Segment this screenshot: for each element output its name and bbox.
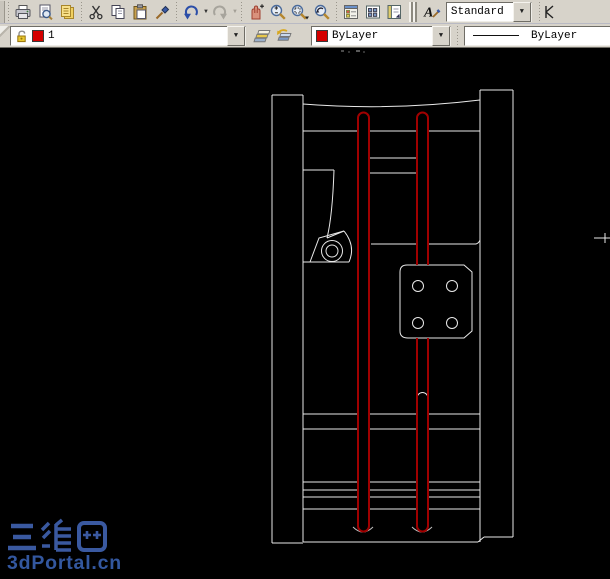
toolbar-separator xyxy=(454,26,461,46)
toolbar-separator xyxy=(173,2,180,22)
watermark-subtitle: 3dPortal.cn xyxy=(7,552,122,574)
paste-button[interactable] xyxy=(129,1,151,22)
paste-icon xyxy=(131,3,149,21)
zoom-realtime-icon xyxy=(269,3,287,21)
clipped-geometry-right xyxy=(594,233,610,243)
linetype-sample-icon xyxy=(473,35,519,36)
pan-button[interactable] xyxy=(245,1,267,22)
cad-red-slots xyxy=(358,113,428,532)
zoom-window-icon xyxy=(290,3,310,21)
redo-button[interactable] xyxy=(209,1,231,22)
linetype-dropdown[interactable]: ByLayer xyxy=(464,26,610,46)
plot-icon xyxy=(14,3,32,21)
caret-icon: ▼ xyxy=(520,8,524,16)
text-style-dropdown-button[interactable]: ▼ xyxy=(513,2,531,22)
tool-palettes-icon xyxy=(385,3,404,21)
layer-previous-icon xyxy=(274,27,294,45)
pan-icon xyxy=(247,3,265,21)
cut-button[interactable] xyxy=(85,1,107,22)
undo-button[interactable] xyxy=(180,1,202,22)
text-style-button[interactable]: A xyxy=(420,1,442,22)
properties-icon xyxy=(342,3,360,21)
clipped-icon-fragment xyxy=(0,26,10,46)
unlock-icon xyxy=(15,29,28,43)
color-value: ByLayer xyxy=(332,30,378,42)
autocad-window: ▼ ▼ xyxy=(0,0,610,579)
color-field: ByLayer xyxy=(312,30,432,42)
text-style-dropdown[interactable]: Standard ▼ xyxy=(446,2,532,22)
zoom-previous-icon xyxy=(313,3,331,21)
watermark: 3dPortal.cn xyxy=(7,520,122,574)
zoom-window-button[interactable] xyxy=(289,1,311,22)
toolbar-separator xyxy=(333,2,340,22)
copy-button[interactable] xyxy=(107,1,129,22)
partial-icon xyxy=(545,5,555,19)
screen-artifacts xyxy=(341,50,365,53)
watermark-title-glyphs xyxy=(8,520,105,550)
publish-icon xyxy=(58,3,77,21)
red-slot-left xyxy=(358,113,369,532)
undo-icon xyxy=(182,3,200,21)
drawing-canvas[interactable]: 3dPortal.cn 三维网 xyxy=(0,48,610,579)
layers-toolbar: 1 ▼ xyxy=(0,24,610,48)
plot-preview-icon xyxy=(36,3,54,21)
red-slot-right xyxy=(417,113,428,532)
toolbar-separator xyxy=(5,2,12,22)
cad-drawing: 3dPortal.cn xyxy=(0,48,610,579)
plot-button[interactable] xyxy=(12,1,34,22)
caret-icon: ▼ xyxy=(439,32,443,40)
toolbar-grip[interactable] xyxy=(409,2,417,22)
color-swatch xyxy=(316,30,328,42)
text-style-icon: A xyxy=(421,3,441,21)
properties-button[interactable] xyxy=(340,1,362,22)
toolbar-separator xyxy=(238,2,245,22)
standard-toolbar: ▼ ▼ xyxy=(0,0,610,24)
caret-icon: ▼ xyxy=(234,32,238,40)
zoom-realtime-button[interactable] xyxy=(267,1,289,22)
svg-text:A: A xyxy=(423,5,433,20)
copy-icon xyxy=(109,3,127,21)
tool-palettes-button[interactable] xyxy=(384,1,406,22)
layer-properties-icon xyxy=(252,27,272,45)
match-properties-icon xyxy=(153,3,171,21)
linetype-field: ByLayer xyxy=(465,30,610,42)
layer-color-swatch xyxy=(32,30,44,42)
plot-preview-button[interactable] xyxy=(34,1,56,22)
design-center-button[interactable] xyxy=(362,1,384,22)
layer-field: 1 xyxy=(11,29,227,43)
color-dropdown-button[interactable]: ▼ xyxy=(432,26,450,46)
layer-previous-button[interactable] xyxy=(273,25,295,46)
cut-icon xyxy=(87,3,105,21)
color-dropdown[interactable]: ByLayer ▼ xyxy=(311,26,451,46)
layer-properties-button[interactable] xyxy=(251,25,273,46)
design-center-icon xyxy=(364,3,382,21)
layer-dropdown[interactable]: 1 ▼ xyxy=(10,26,246,46)
layer-dropdown-button[interactable]: ▼ xyxy=(227,26,245,46)
text-style-field: Standard xyxy=(447,6,513,18)
redo-icon xyxy=(211,3,229,21)
toolbar-separator xyxy=(78,2,85,22)
linetype-value: ByLayer xyxy=(531,30,577,42)
cad-part-outline xyxy=(272,90,610,543)
toolbar-separator xyxy=(536,2,543,22)
publish-button[interactable] xyxy=(56,1,78,22)
layer-name: 1 xyxy=(48,30,55,42)
text-style-value: Standard xyxy=(451,6,504,18)
zoom-previous-button[interactable] xyxy=(311,1,333,22)
match-properties-button[interactable] xyxy=(151,1,173,22)
clipped-control-fragment xyxy=(543,1,557,22)
